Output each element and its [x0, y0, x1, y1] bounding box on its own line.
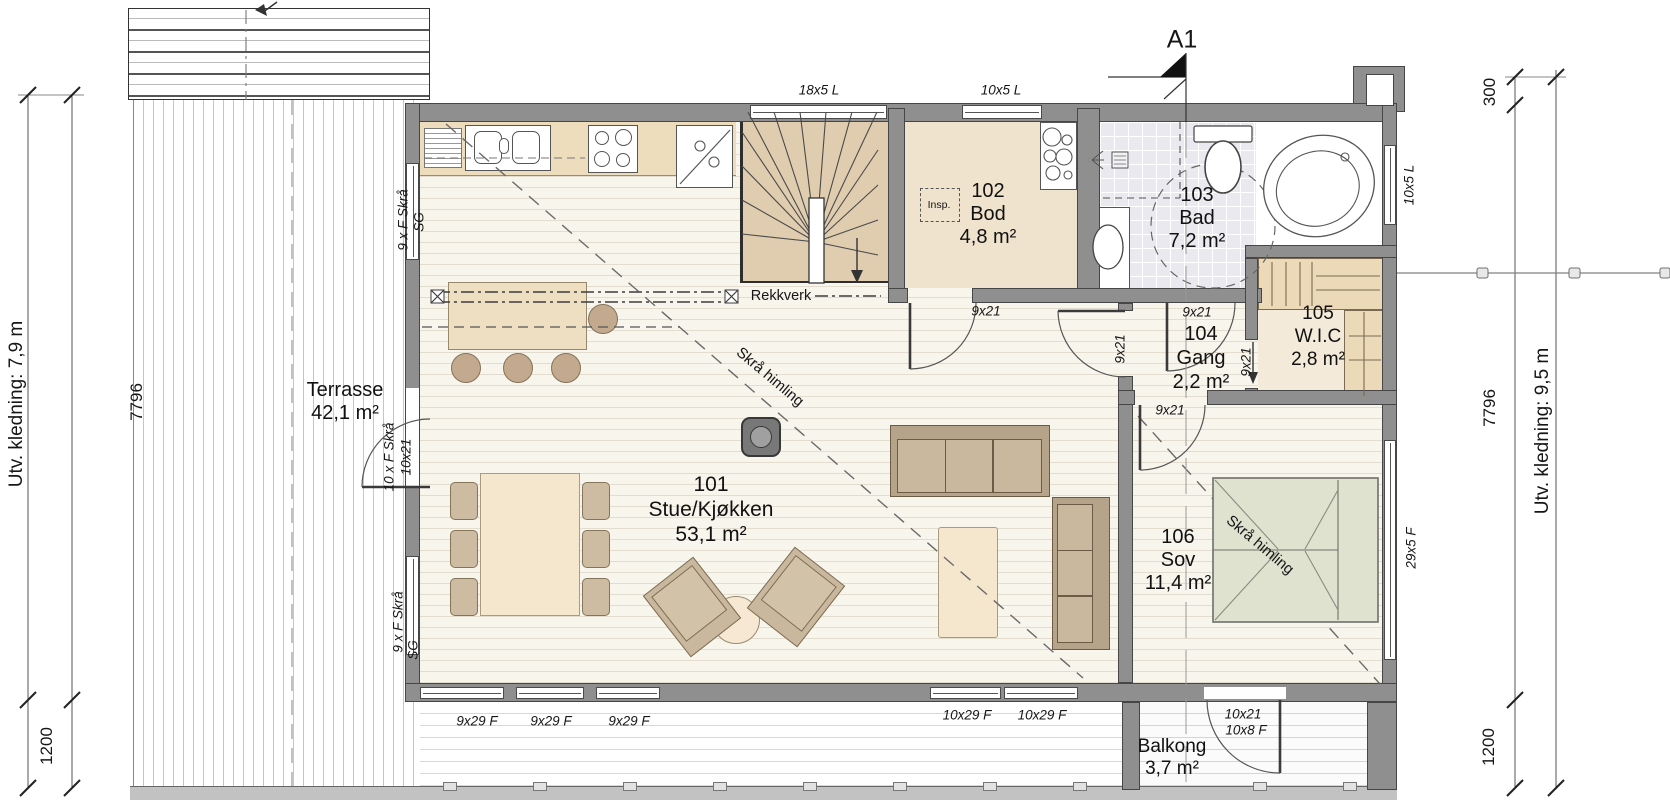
burner [594, 151, 610, 167]
dim-right-roof: 300 [1480, 78, 1500, 106]
wic-wardrobe-side [1344, 310, 1384, 398]
deck-post [443, 782, 457, 791]
room-name: Sov [1145, 549, 1211, 572]
dining-chair [582, 530, 610, 568]
bed-pillow [1342, 487, 1374, 545]
dining-chair [582, 482, 610, 520]
tv-bench [1052, 497, 1110, 650]
area-size: 42,1 m² [307, 402, 384, 425]
room-label-102: 102 Bod 4,8 m² [960, 180, 1017, 249]
balcony-label: Balkong 3,7 m² [1138, 736, 1207, 780]
bar-stool [551, 353, 581, 383]
deck-post [983, 782, 997, 791]
room-number: 103 [1169, 184, 1226, 207]
area-name: Balkong [1138, 736, 1207, 758]
room-area: 11,4 m² [1145, 572, 1211, 595]
window-9x29-1 [420, 687, 504, 699]
bar-counter [448, 282, 587, 350]
bathtub-alcove [1256, 122, 1382, 246]
wall-storage-south-b [972, 288, 1262, 303]
deck-post [713, 782, 727, 791]
sink-basin [512, 131, 540, 164]
wall-hall-west-a [1118, 303, 1133, 311]
window-east-bedroom [1384, 440, 1396, 660]
storage-tech-unit [1040, 122, 1077, 190]
dining-chair [450, 578, 478, 616]
window-label-10x5: 10x5 L [981, 83, 1022, 98]
coffee-table [938, 527, 998, 638]
dining-chair [450, 482, 478, 520]
door-label-9x21: 9x21 [971, 304, 1000, 319]
bar-stool [451, 353, 481, 383]
room-label-104: 104 Gang 2,2 m² [1173, 322, 1230, 394]
deck-post [1343, 782, 1357, 791]
sofa [890, 425, 1050, 497]
wall-wic-north [1245, 245, 1397, 258]
dining-table [480, 473, 580, 616]
room-name: Bod [960, 203, 1017, 226]
balcony-window-label: 10x8 F [1225, 723, 1266, 738]
west-window-type-label: 9 x F Skrå [391, 591, 406, 652]
window-label-10x29: 10x29 F [1018, 708, 1067, 723]
deck-post [623, 782, 637, 791]
wall-balcony-east [1367, 702, 1397, 790]
window-label-18x5: 18x5 L [799, 83, 840, 98]
room-area: 2,8 m² [1291, 348, 1345, 371]
door-label-9x21: 9x21 [1239, 347, 1254, 376]
door-label-9x21: 9x21 [1113, 334, 1128, 363]
room-name: W.I.C [1291, 325, 1345, 348]
window-10x29-1 [930, 687, 1001, 699]
window-9x29-2 [516, 687, 584, 699]
room-number: 102 [960, 180, 1017, 203]
terrace-door-type-label: 10 x F Skrå [382, 423, 397, 492]
room-label-101: 101 Stue/Kjøkken 53,1 m² [649, 472, 774, 547]
balcony-door-label: 10x21 [1225, 707, 1262, 722]
deck-post [1073, 782, 1087, 791]
room-number: 106 [1145, 526, 1211, 549]
wall-wic-west-a [1245, 258, 1258, 340]
inspection-label: Insp. [928, 199, 951, 211]
window-label-10x5-east: 10x5 L [1402, 165, 1417, 206]
dim-right-cladding: Utv. kledning: 9,5 m [1532, 348, 1554, 515]
west-window-type-label: 9 x F Skrå [396, 189, 411, 250]
room-area: 7,2 m² [1169, 230, 1226, 253]
chimney-flue [1366, 74, 1394, 106]
window-10x5-top [962, 105, 1042, 119]
west-window-glass-label: SG [412, 212, 427, 232]
kitchen-dishrack [424, 128, 462, 168]
room-number: 105 [1291, 302, 1345, 325]
window-label-9x29: 9x29 F [530, 714, 571, 729]
room-label-103: 103 Bad 7,2 m² [1169, 184, 1226, 253]
dim-left-offset: 1200 [37, 727, 57, 765]
window-label-9x29: 9x29 F [608, 714, 649, 729]
wood-stove [741, 417, 781, 457]
west-window-glass-label: SG [406, 640, 421, 660]
room-name: Gang [1173, 346, 1230, 370]
dining-chair [450, 530, 478, 568]
wall-storage-bath [1077, 108, 1100, 303]
burner [595, 131, 609, 145]
room-label-106: 106 Sov 11,4 m² [1145, 526, 1211, 595]
bed-pillow [1342, 553, 1374, 611]
area-name: Terrasse [307, 379, 384, 402]
floor-plan: 101 Stue/Kjøkken 53,1 m² 102 Bod 4,8 m² … [0, 0, 1670, 800]
room-name: Bad [1169, 207, 1226, 230]
wall-bedroom-north-a [1118, 390, 1135, 405]
door-label-9x21: 9x21 [1155, 403, 1184, 418]
terrace-deck [133, 100, 421, 786]
dim-left-total: 7796 [127, 383, 147, 421]
kitchen-corner-unit [676, 125, 733, 188]
dining-chair [582, 578, 610, 616]
room-area: 4,8 m² [960, 226, 1017, 249]
room-number: 104 [1173, 322, 1230, 346]
dim-right-total: 7796 [1480, 389, 1500, 427]
wall-stair-storage [888, 108, 905, 303]
room-number: 101 [649, 472, 774, 497]
dim-left-cladding: Utv. kledning: 7,9 m [6, 321, 28, 488]
bar-stool [588, 304, 618, 334]
deck-post [803, 782, 817, 791]
wall-bedroom-north-b [1207, 390, 1397, 405]
window-10x29-2 [1004, 687, 1078, 699]
balcony-door-opening [1204, 687, 1286, 699]
stair-floor [740, 110, 888, 283]
room-label-105: 105 W.I.C 2,8 m² [1291, 302, 1345, 371]
wall-hall-west-b [1118, 376, 1133, 683]
window-18x5 [750, 105, 887, 119]
railing-label: Rekkverk [751, 288, 811, 304]
burner [615, 129, 632, 146]
window-label-9x29: 9x29 F [456, 714, 497, 729]
area-size: 3,7 m² [1138, 758, 1207, 780]
bar-stool [503, 353, 533, 383]
sink-faucet [499, 138, 509, 154]
room-name: Stue/Kjøkken [649, 497, 774, 522]
terrace-label: Terrasse 42,1 m² [307, 379, 384, 425]
window-label-10x29: 10x29 F [943, 708, 992, 723]
door-label-9x21: 9x21 [1182, 305, 1211, 320]
window-east-bath [1384, 145, 1396, 225]
dim-right-offset: 1200 [1479, 728, 1499, 766]
section-marker-label: A1 [1167, 26, 1198, 55]
window-label-29x5: 29x5 F [1404, 527, 1419, 568]
sink-basin [474, 131, 502, 164]
room-area: 2,2 m² [1173, 370, 1230, 394]
burner [616, 153, 630, 167]
window-9x29-3 [596, 687, 660, 699]
deck-post [893, 782, 907, 791]
deck-post [1253, 782, 1267, 791]
deck-post [533, 782, 547, 791]
deck-edge-strip [130, 786, 1397, 800]
room-area: 53,1 m² [649, 522, 774, 547]
pergola-roof [128, 8, 430, 100]
terrace-door-size-label: 10x21 [399, 439, 414, 476]
wall-storage-south-a [888, 288, 908, 303]
